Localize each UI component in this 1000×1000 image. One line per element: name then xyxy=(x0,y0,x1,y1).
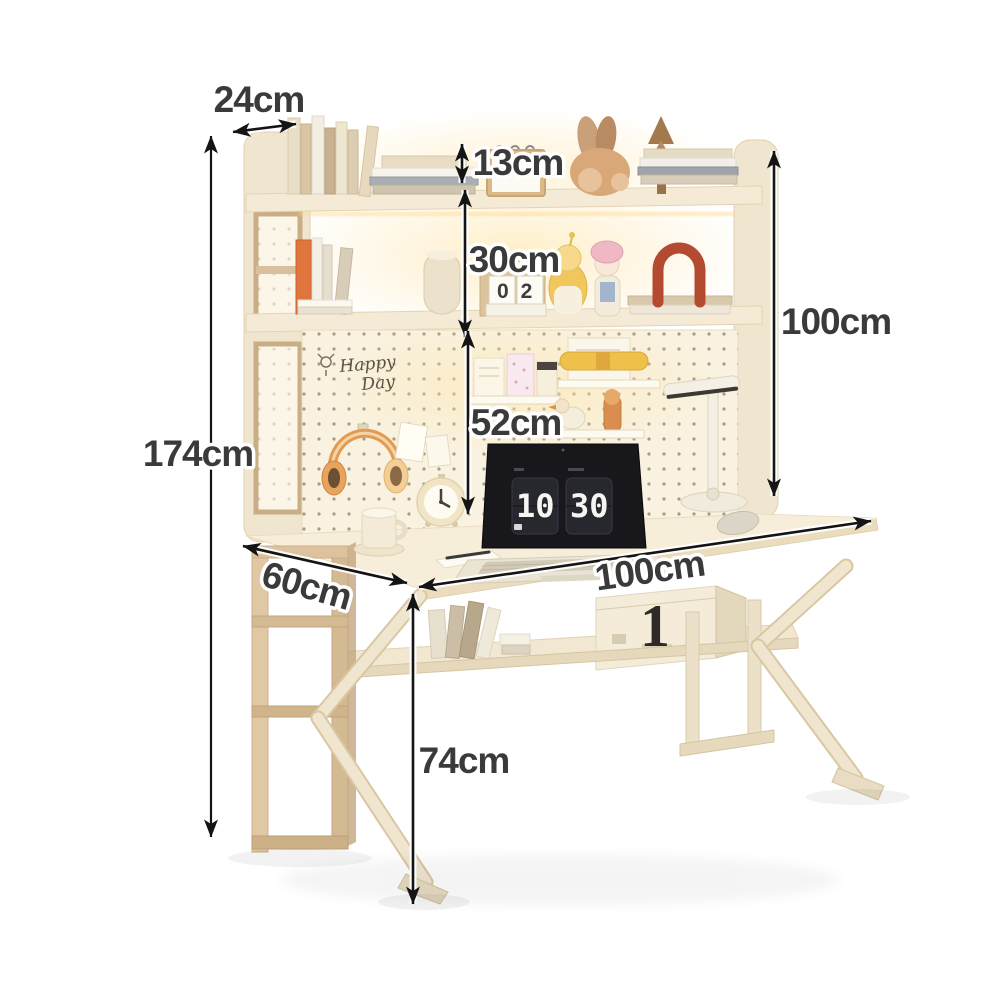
books-right xyxy=(628,296,732,314)
under-desk-storage: 1 xyxy=(338,586,798,678)
books-left xyxy=(296,238,353,315)
product-dimension-diagram: 02 Happy xyxy=(0,0,1000,1000)
flip-clock-minutes: 30 xyxy=(570,487,609,525)
under-desk-books xyxy=(428,601,530,659)
flip-clock-hours: 10 xyxy=(516,487,555,525)
label-shelf-spacing: 30cm xyxy=(469,239,560,280)
label-total-height: 174cm xyxy=(143,433,253,474)
label-top-depth: 24cm xyxy=(214,79,305,120)
label-top-shelf-clearance: 13cm xyxy=(473,142,564,183)
cube-calendar-digits: 02 xyxy=(497,280,544,303)
scene-svg: 02 Happy xyxy=(0,0,1000,1000)
pegboard-shelf-left xyxy=(468,354,560,404)
label-hutch-height: 100cm xyxy=(781,301,891,342)
cube-calendar: 02 xyxy=(486,276,546,316)
pegboard-sign-line2: Day xyxy=(360,372,396,395)
label-desk-height: 74cm xyxy=(419,740,510,781)
label-pegboard-height: 52cm xyxy=(471,402,562,443)
books-stacked-right xyxy=(638,149,738,184)
arrow-top-depth xyxy=(233,124,296,132)
smart-speaker xyxy=(424,250,460,314)
